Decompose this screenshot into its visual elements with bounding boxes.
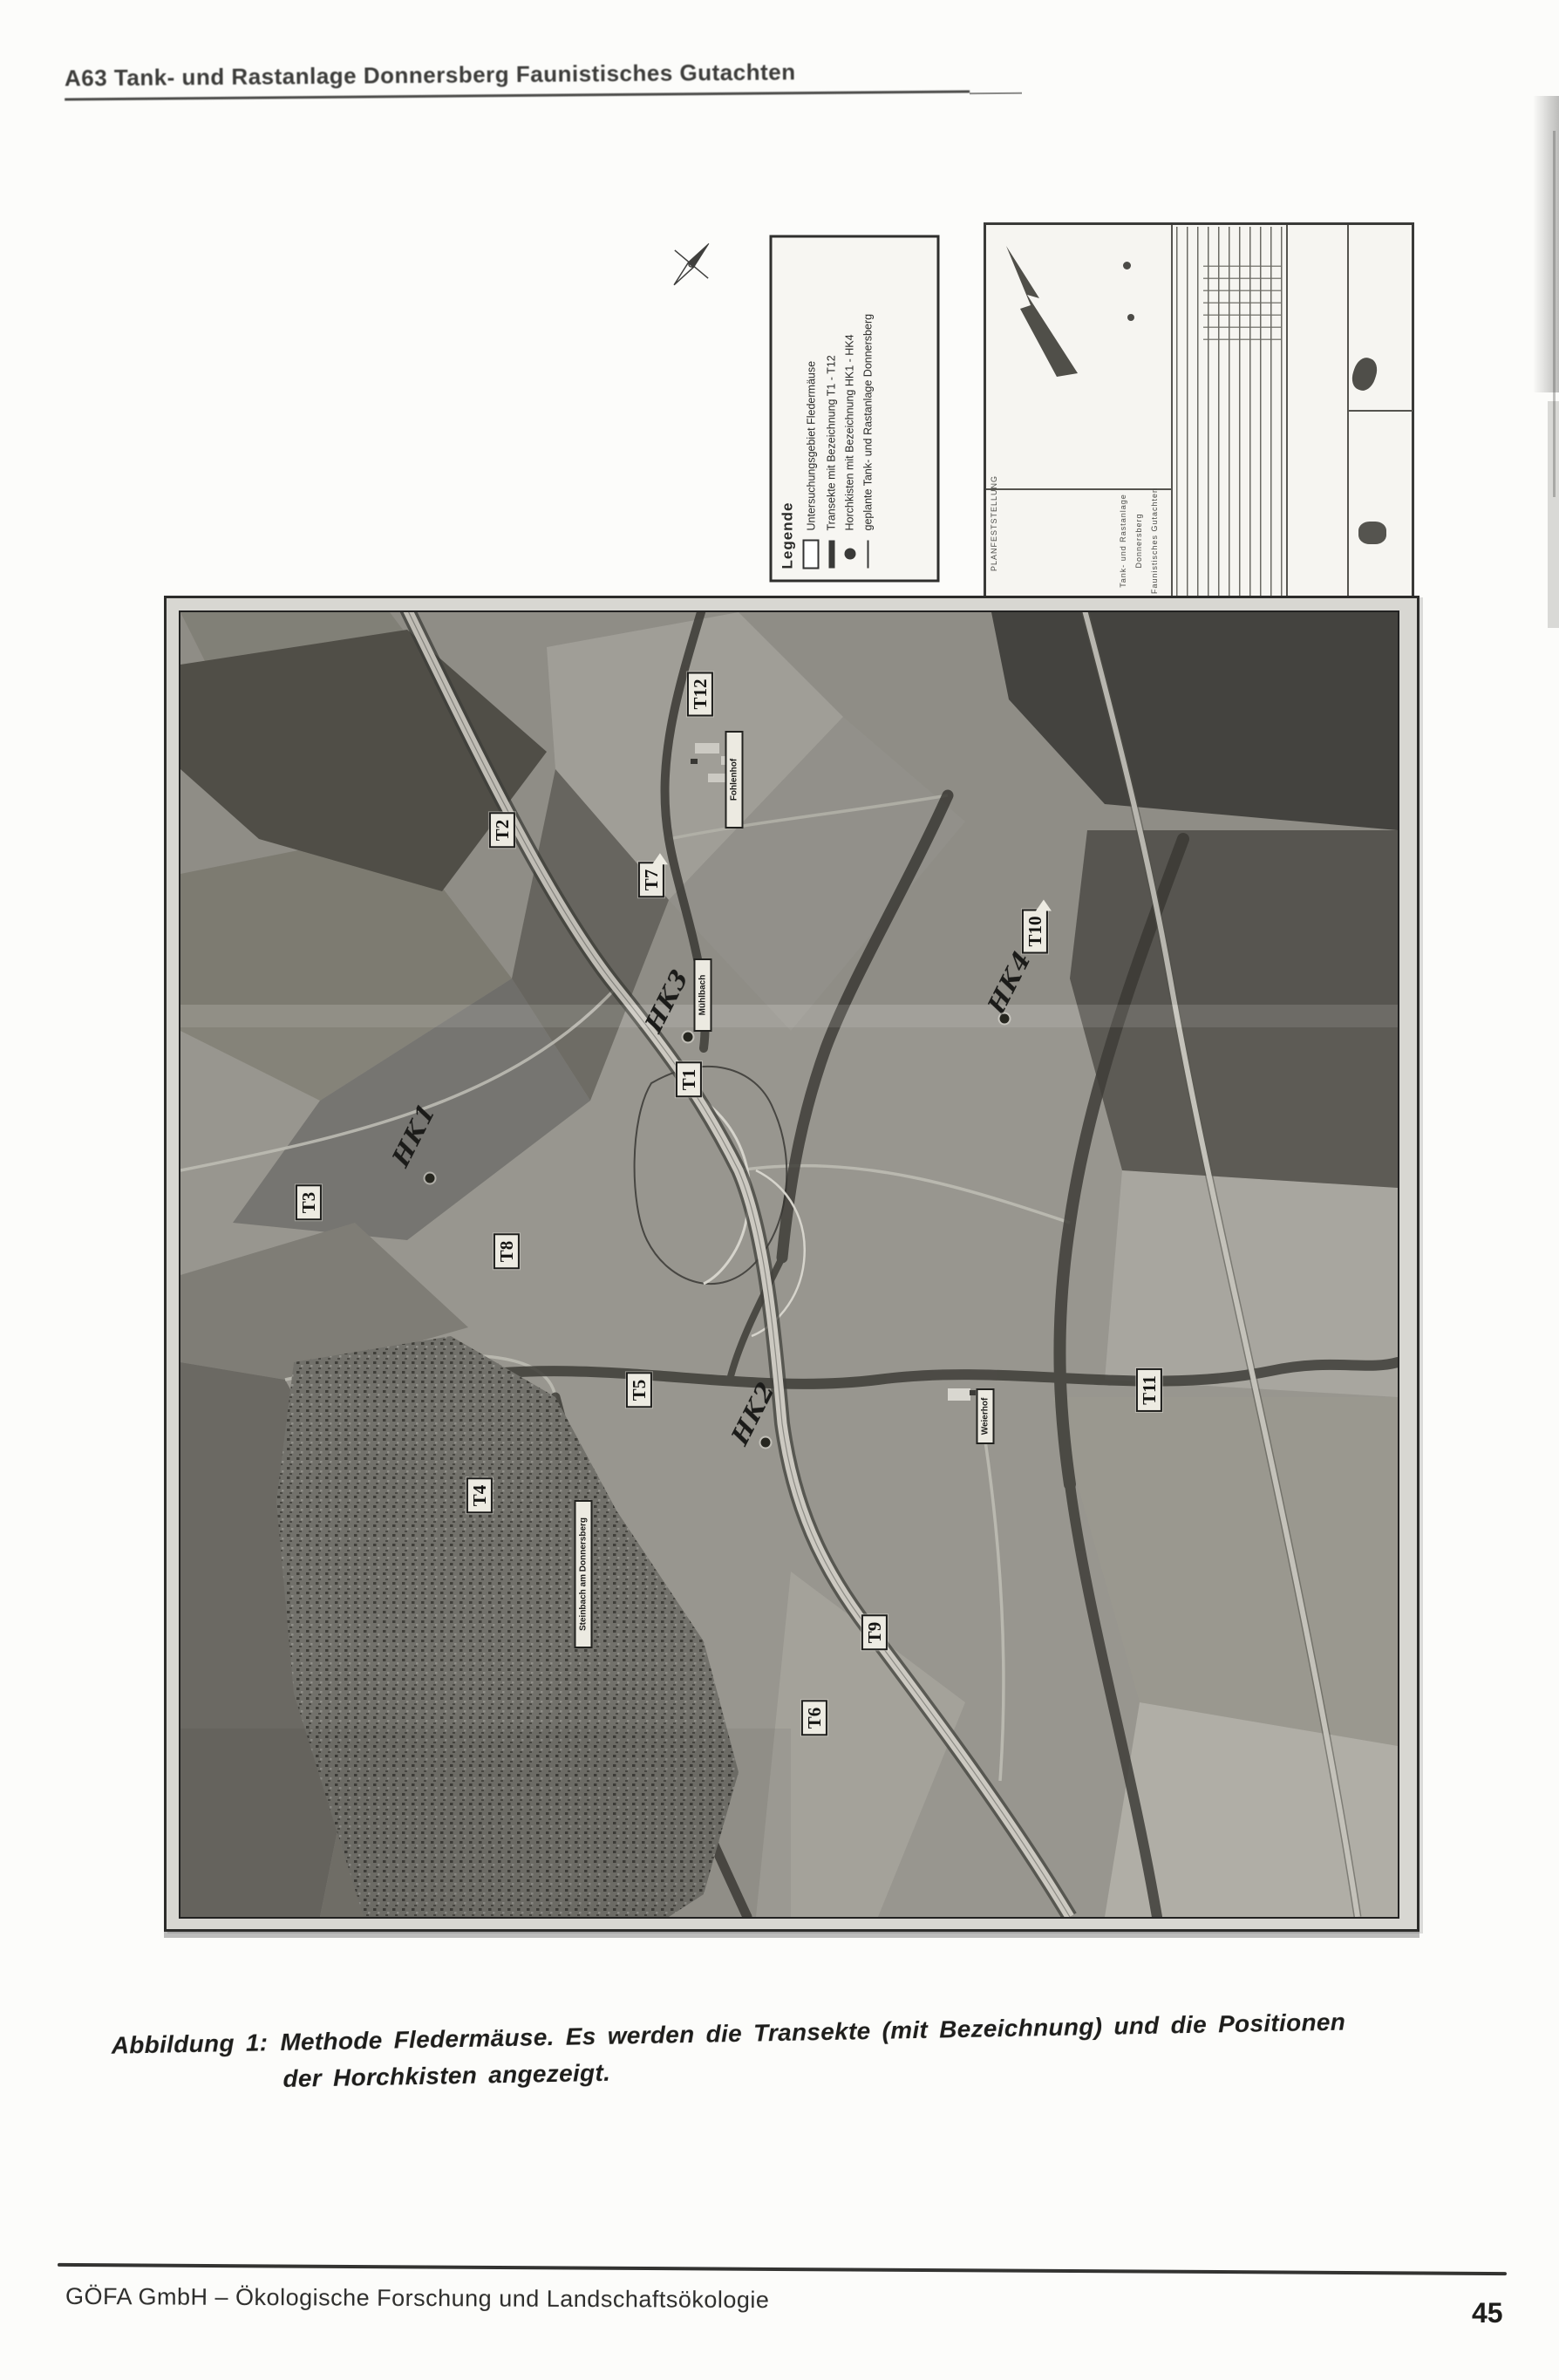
title-block-divider [1171, 225, 1173, 609]
map-figure-frame [164, 596, 1419, 1932]
title-block-text-1: Tank- und Rastanlage [1119, 494, 1127, 588]
title-block-text-0: PLANFESTSTELLUNG [990, 475, 998, 571]
legend-symbol-rect-icon [803, 540, 820, 569]
title-block-text-3: Faunistisches Gutachten [1150, 488, 1159, 594]
legend-item-label: Horchkisten mit Bezeichnung HK1 - HK4 [844, 334, 856, 530]
legend-symbol-dot-icon [844, 540, 855, 569]
aerial-photo [179, 610, 1399, 1919]
caption-label: Abbildung 1: [111, 2029, 268, 2058]
legend-item-2: Horchkisten mit Bezeichnung HK1 - HK4 [844, 249, 856, 569]
running-header: A63 Tank- und Rastanlage Donnersberg Fau… [65, 57, 970, 100]
scan-edge-line [1553, 131, 1556, 497]
legend-items: Untersuchungsgebiet FledermäuseTransekte… [803, 249, 875, 569]
title-block-stamp [1358, 522, 1386, 544]
scanned-report-page: A63 Tank- und Rastanlage Donnersberg Fau… [0, 0, 1559, 2380]
legend-item-0: Untersuchungsgebiet Fledermäuse [803, 249, 820, 569]
title-block-mark [1123, 262, 1131, 269]
legend-item-1: Transekte mit Bezeichnung T1 - T12 [826, 249, 838, 569]
title-block-divider [1349, 410, 1413, 412]
map-legend: Legende Untersuchungsgebiet FledermäuseT… [770, 235, 940, 583]
legend-item-label: Transekte mit Bezeichnung T1 - T12 [826, 355, 838, 530]
title-block-table-lines-2 [1203, 262, 1282, 340]
page-number: 45 [1472, 2297, 1503, 2329]
title-block-divider [1347, 225, 1349, 609]
legend-item-label: Untersuchungsgebiet Fledermäuse [805, 361, 817, 531]
title-block-mark [1127, 314, 1134, 321]
title-block-divider [986, 488, 1171, 490]
figure-caption: Abbildung 1:Methode Fledermäuse. Es werd… [111, 2008, 1358, 2096]
header-underline-tail [970, 92, 1022, 95]
compass-icon [661, 234, 722, 295]
aerial-photo-artwork [180, 612, 1398, 1917]
legend-title: Legende [779, 249, 797, 569]
title-block-divider [1286, 225, 1288, 609]
legend-symbol-thick-line-icon [828, 540, 834, 569]
legend-item-label: geplante Tank- und Rastanlage Donnersber… [862, 314, 875, 531]
legend-symbol-thin-line-icon [868, 540, 869, 569]
footer-rule [58, 2263, 1507, 2275]
footer-company: GÖFA GmbH – Ökologische Forschung und La… [65, 2283, 770, 2314]
title-block-text-2: Donnersberg [1134, 513, 1143, 568]
legend-item-3: geplante Tank- und Rastanlage Donnersber… [862, 249, 875, 569]
